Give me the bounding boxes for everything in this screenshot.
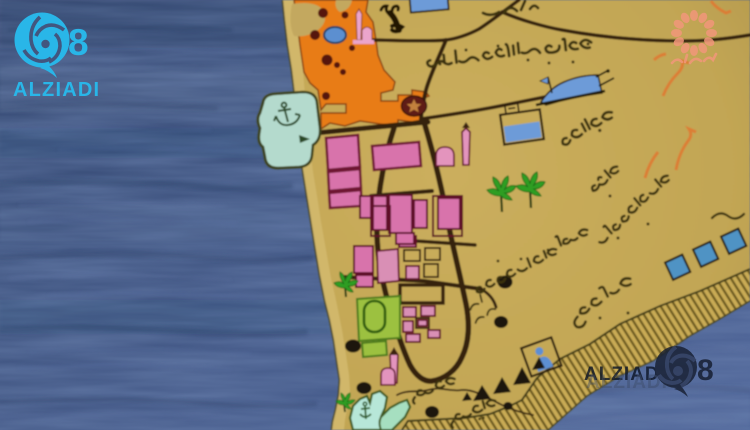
svg-text:8: 8 <box>697 354 714 387</box>
svg-text:8: 8 <box>68 22 89 63</box>
svg-text:ALZIADI: ALZIADI <box>13 79 100 101</box>
svg-text:ALZIADI: ALZIADI <box>586 372 668 393</box>
